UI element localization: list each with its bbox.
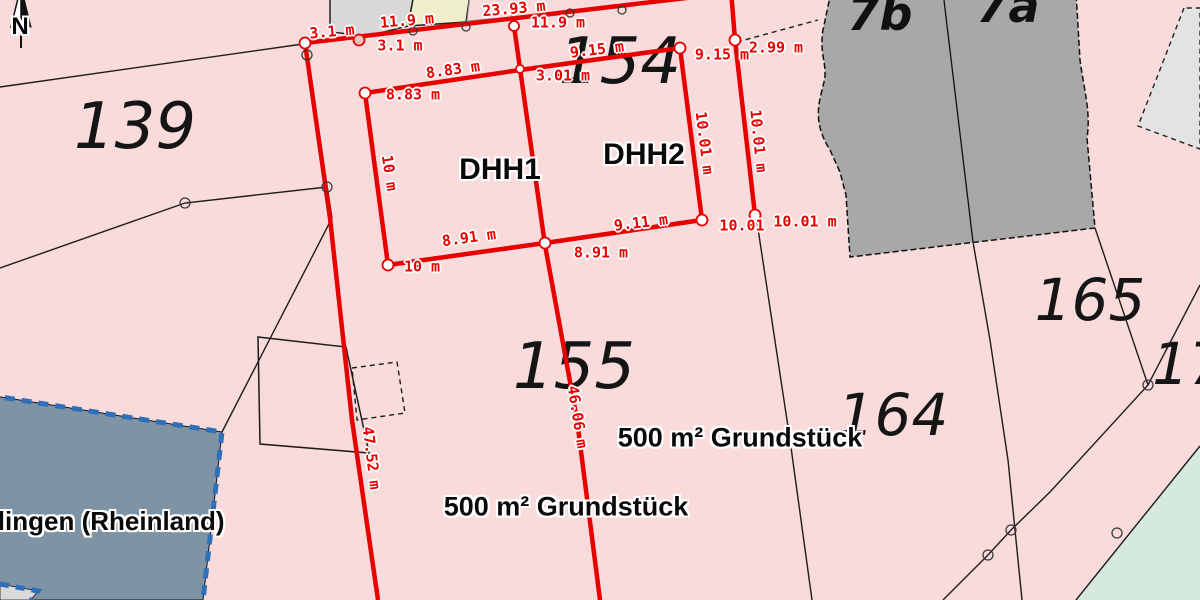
measurement-label: 9.11 m <box>613 212 669 233</box>
annotation-layer: N 7b 7a DHH1 DHH2 500 m² Grundstück 500 … <box>0 0 1200 600</box>
area-label-1: 500 m² Grundstück <box>618 425 863 452</box>
measurement-label: 8.83 m <box>386 88 440 103</box>
measurement-label: 46.06 m <box>565 385 590 450</box>
measurement-label: 8.91 m <box>574 246 628 261</box>
measurement-label: 10 m <box>379 154 399 192</box>
plot-label-dhh2: DHH2 <box>603 140 685 170</box>
municipality-label: chlingen (Rheinland) <box>0 508 225 534</box>
measurement-label: 9.15 m <box>569 39 625 60</box>
measurement-label: 11.9 m <box>379 11 434 31</box>
measurement-label: 10.01 <box>719 219 764 234</box>
measurement-label: 10.01 m <box>693 111 716 176</box>
measurement-label: 8.83 m <box>425 59 481 81</box>
measurement-label: 47.52 m <box>360 426 383 491</box>
measurement-label: 11.9 m <box>531 16 585 31</box>
measurement-label: 3.1 m <box>309 23 355 42</box>
measurement-label: 2.99 m <box>749 41 803 56</box>
measurement-label: 3.01 m <box>536 69 590 84</box>
north-label: N <box>11 15 28 39</box>
plot-label-dhh1: DHH1 <box>459 155 541 185</box>
cadastral-map[interactable]: 139 154 155 164 165 17 <box>0 0 1200 600</box>
measurement-label: 10.01 m <box>773 215 836 230</box>
measurement-label: 3.1 m <box>377 39 422 54</box>
house-number-7b: 7b <box>848 0 913 37</box>
measurement-label: 9.15 m <box>695 48 749 63</box>
area-label-2: 500 m² Grundstück <box>444 494 689 521</box>
measurement-label: 8.91 m <box>441 227 497 249</box>
house-number-7a: 7a <box>976 0 1039 29</box>
measurement-label: 10 m <box>404 260 440 275</box>
measurement-label: 10.01 m <box>747 109 769 173</box>
